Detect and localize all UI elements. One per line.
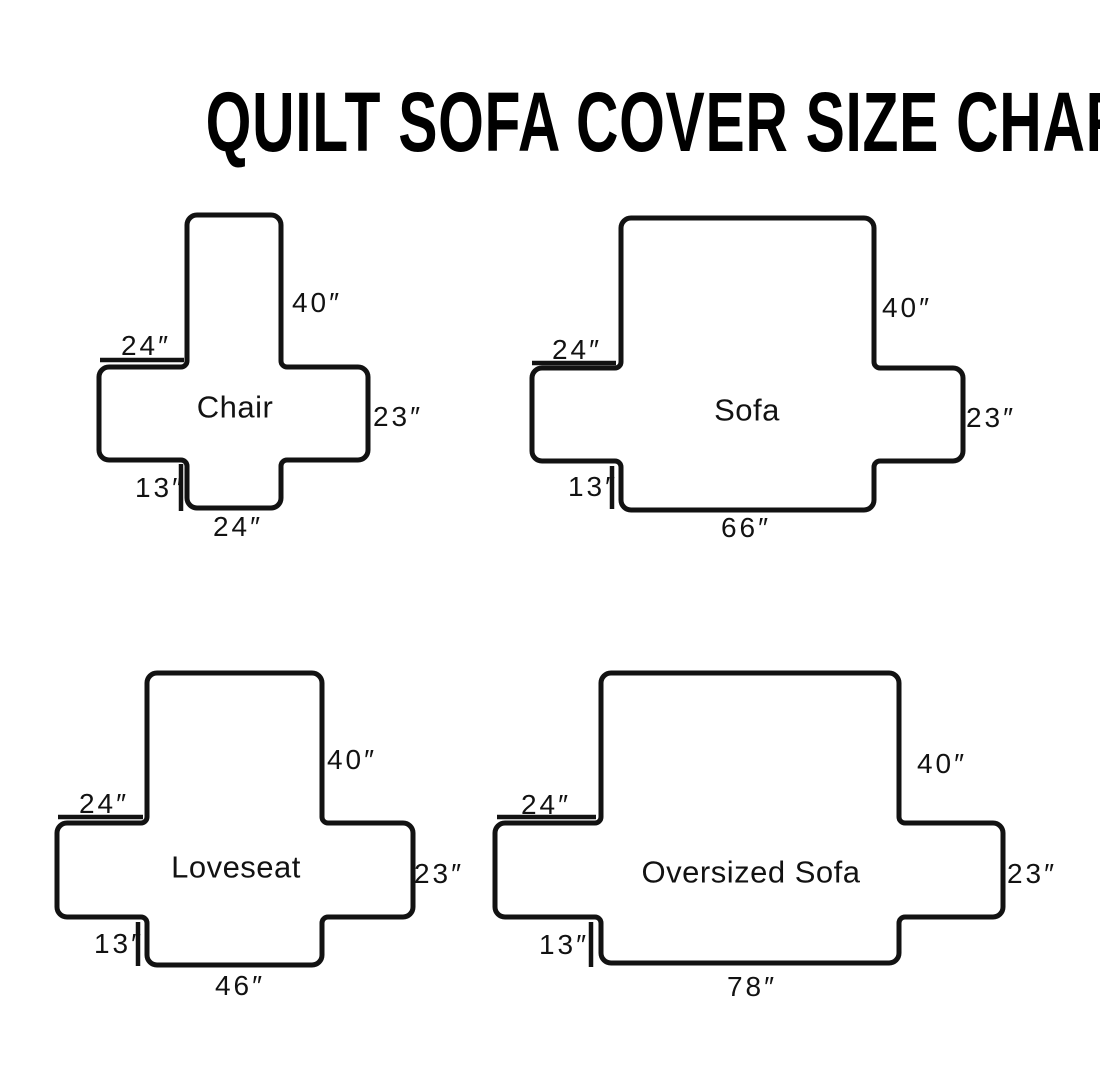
sofa-name-label: Sofa	[714, 395, 780, 426]
chair-skirt-height-label: 13″	[135, 474, 185, 502]
sofa-arm-width-label: 24″	[552, 336, 602, 364]
loveseat-name-label: Loveseat	[171, 852, 301, 883]
loveseat-side-depth-label: 23″	[414, 860, 464, 888]
quilt-sofa-cover-size-chart: QUILT SOFA COVER SIZE CHART 40″ 24″ Chai…	[0, 0, 1100, 1092]
sofa-skirt-height-label: 13″	[568, 473, 618, 501]
loveseat-skirt-height-label: 13″	[94, 930, 144, 958]
loveseat-back-height-label: 40″	[327, 746, 377, 774]
chair-seat-width-label: 24″	[213, 513, 263, 541]
loveseat-seat-width-label: 46″	[215, 972, 265, 1000]
oversized-sofa-arm-width-label: 24″	[521, 791, 571, 819]
oversized-sofa-back-height-label: 40″	[917, 750, 967, 778]
oversized-sofa-skirt-height-label: 13″	[539, 931, 589, 959]
sofa-back-height-label: 40″	[882, 294, 932, 322]
oversized-sofa-side-depth-label: 23″	[1007, 860, 1057, 888]
sofa-side-depth-label: 23″	[966, 404, 1016, 432]
oversized-sofa-name-label: Oversized Sofa	[642, 857, 861, 888]
chair-name-label: Chair	[197, 392, 274, 423]
oversized-sofa-seat-width-label: 78″	[727, 973, 777, 1001]
chair-side-depth-label: 23″	[373, 403, 423, 431]
chair-arm-width-label: 24″	[121, 332, 171, 360]
sofa-seat-width-label: 66″	[721, 514, 771, 542]
chair-back-height-label: 40″	[292, 289, 342, 317]
loveseat-arm-width-label: 24″	[79, 790, 129, 818]
